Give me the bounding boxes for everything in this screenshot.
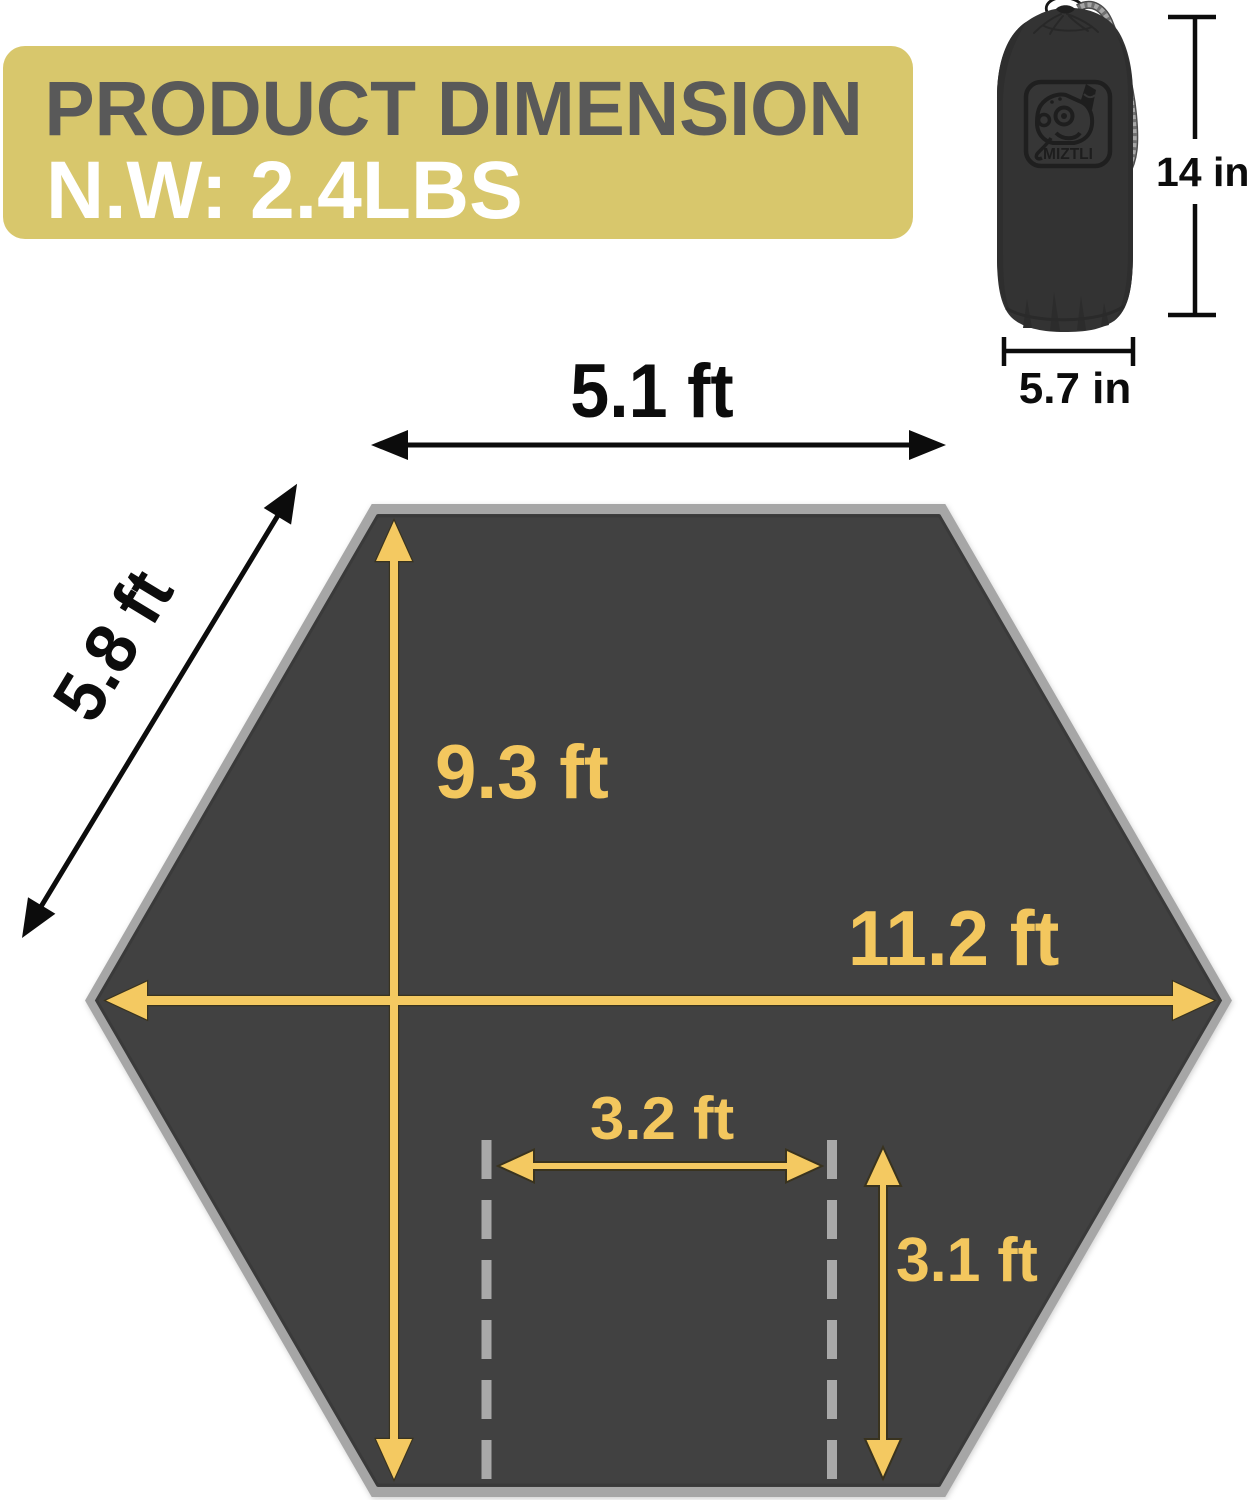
svg-text:5.8 ft: 5.8 ft [37,556,189,735]
svg-text:5.7 in: 5.7 in [1019,364,1132,413]
svg-text:N.W: 2.4LBS: N.W: 2.4LBS [46,144,523,236]
svg-text:9.3 ft: 9.3 ft [435,729,609,814]
svg-text:11.2 ft: 11.2 ft [848,895,1059,982]
svg-text:PRODUCT DIMENSION: PRODUCT DIMENSION [45,66,863,152]
svg-text:5.1 ft: 5.1 ft [570,348,734,434]
svg-text:3.2 ft: 3.2 ft [590,1085,734,1152]
svg-text:3.1 ft: 3.1 ft [896,1225,1038,1295]
svg-text:14 in: 14 in [1156,149,1249,195]
svg-text:MIZTLI: MIZTLI [1043,146,1093,163]
